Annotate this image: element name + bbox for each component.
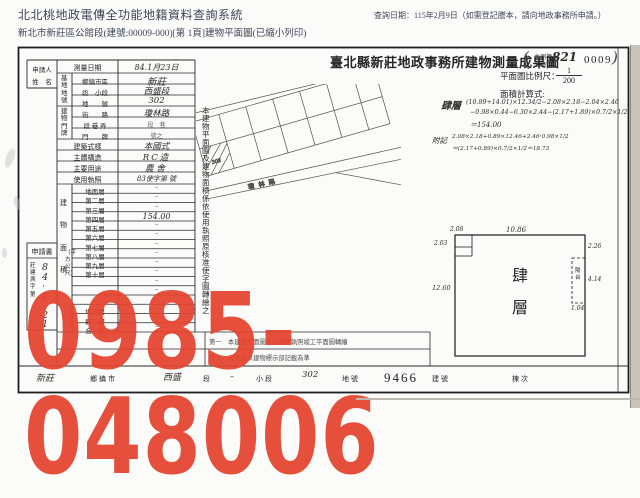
sketch-parcel-number: 302 [211,158,222,166]
scan-smudge-3 [2,248,7,258]
scan-edge-right-line [630,45,631,408]
watermark-phone-number: 0985-048006 [24,280,517,490]
scanned-document-page: { "header": { "system_title": "北北桃地政電傳全功… [0,0,640,408]
scan-edge-right [631,45,640,408]
scan-edge-bottom [356,398,640,400]
location-sketch: 瓊林路 302 [196,84,401,244]
